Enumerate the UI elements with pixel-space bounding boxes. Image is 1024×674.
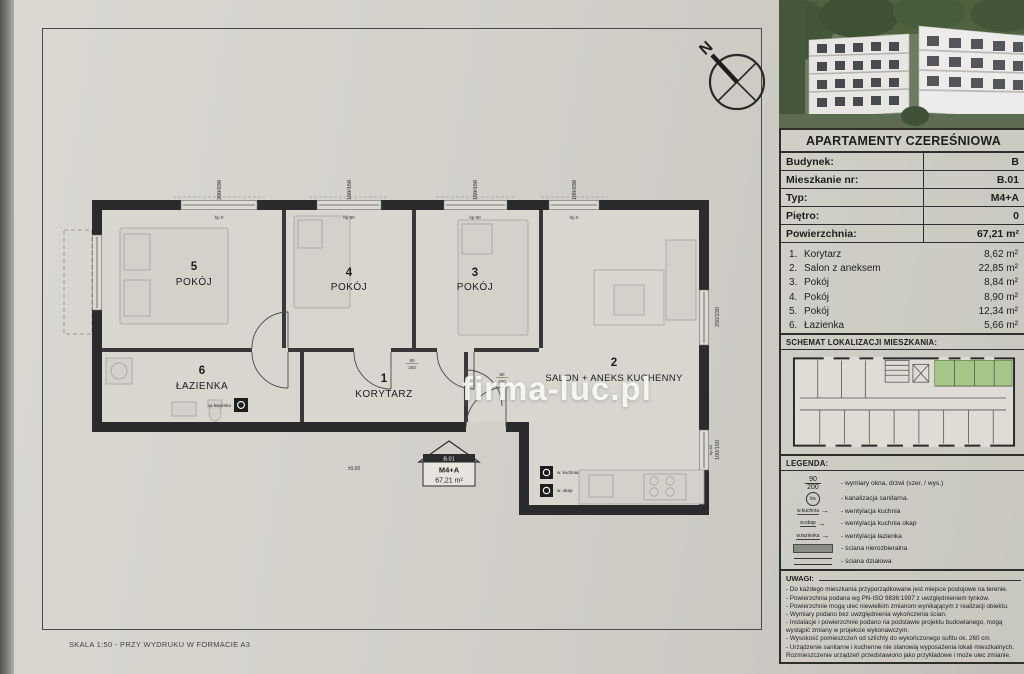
- room-list: 1. Korytarz 8,62 m² 2. Salon z aneksem 2…: [781, 243, 1024, 333]
- room-no: 3.: [789, 276, 804, 290]
- room-area: 8,84 m²: [984, 276, 1018, 290]
- titleblock-row: Mieszkanie nr: B.01: [781, 171, 1024, 189]
- window-hp: hp 80: [469, 215, 481, 220]
- row-value: 67,21 m²: [923, 225, 1024, 242]
- solid-wall-symbol: [793, 544, 833, 553]
- row-value: M4+A: [923, 189, 1024, 206]
- row-label: Piętro:: [781, 207, 923, 224]
- room-name: Pokój: [804, 276, 984, 290]
- badge-type: M4+A: [439, 466, 460, 475]
- room-name: Pokój: [804, 291, 984, 305]
- room-list-item: 5. Pokój 12,34 m²: [789, 305, 1018, 319]
- legend-item: w.kuchnia→ - wentylacja kuchnia: [785, 505, 1022, 518]
- vent-word: w.kuchnia: [797, 508, 819, 515]
- scale-note: SKALA 1:50 - PRZY WYDRUKU W FORMACIE A3: [69, 640, 250, 649]
- window-dim-symbol: 90 200: [805, 476, 821, 492]
- row-label: Typ:: [781, 189, 923, 206]
- window-dim-right: 100/150: [715, 440, 721, 460]
- legend-label: - wentylacja kuchnia okap: [841, 520, 917, 527]
- window-dim: 160/150: [473, 180, 479, 200]
- sanitary-symbol: ks: [806, 492, 820, 506]
- paper-sheet: N: [14, 0, 1024, 674]
- row-value: 0: [923, 207, 1024, 224]
- vent-hood-symbol: w.okap→: [800, 520, 826, 527]
- room4-name: POKÓJ: [331, 280, 367, 293]
- room-area: 12,34 m²: [979, 305, 1018, 319]
- highlighted-apartment: [934, 361, 1011, 387]
- room-list-item: 4. Pokój 8,90 m²: [789, 291, 1018, 305]
- window-dim: 100/230: [572, 180, 578, 200]
- vent-bath-symbol: w.łazienka→: [796, 533, 829, 540]
- room1-name: KORYTARZ: [355, 389, 413, 400]
- apartment-badge: B.01 M4+A 67,21 m²: [419, 441, 479, 486]
- level-mark: ±0,00: [348, 466, 361, 472]
- room-name: Pokój: [804, 305, 979, 319]
- room-name: Salon z aneksem: [804, 262, 979, 276]
- room-no: 2.: [789, 262, 804, 276]
- notes-heading-text: UWAGI:: [786, 574, 814, 583]
- room3-number: 3: [472, 267, 478, 279]
- partition-wall-symbol: [794, 558, 832, 565]
- vent-kitchen-label: w. kuchnia: [557, 470, 579, 475]
- row-label: Budynek:: [781, 153, 923, 170]
- location-heading: SCHEMAT LOKALIZACJI MIESZKANIA:: [781, 333, 1024, 350]
- room-no: 4.: [789, 291, 804, 305]
- room3-name: POKÓJ: [457, 280, 493, 293]
- north-arrow-icon: N: [697, 30, 767, 118]
- legend-item: w.okap→ - wentylacja kuchnia okap: [785, 517, 1022, 530]
- room1-number: 1: [381, 373, 388, 385]
- room-name: Korytarz: [804, 248, 984, 262]
- legend-label: - wymiary okna, drzwi (szer. / wys.): [841, 480, 943, 487]
- note-line: - Do każdego mieszkania przyporządkowane…: [786, 586, 1021, 594]
- dim-width: 90: [805, 476, 821, 485]
- vent-word: w.okap: [800, 520, 816, 527]
- note-line: - Urządzenie sanitarne i kuchenne nie st…: [786, 644, 1021, 660]
- note-line: - Wymiary podano bez uwzględnienia wykoń…: [786, 611, 1021, 619]
- legend-label: - kanalizacja sanitarna.: [841, 495, 908, 502]
- window-hp: hp 80: [343, 215, 355, 220]
- room-area: 5,66 m²: [984, 319, 1018, 333]
- row-value: B.01: [923, 171, 1024, 188]
- notes: - Do każdego mieszkania przyporządkowane…: [781, 584, 1024, 662]
- window-hp-right: hp 80: [708, 444, 713, 455]
- window-hp: hp 0: [570, 215, 579, 220]
- dim-height: 200: [807, 484, 819, 491]
- room5-number: 5: [191, 261, 198, 273]
- legend-item: w.łazienka→ - wentylacja łazienka: [785, 530, 1022, 543]
- row-label: Powierzchnia:: [781, 225, 923, 242]
- arrow-icon: →: [821, 508, 829, 514]
- terrace-outline: [64, 230, 92, 334]
- note-line: - Powierzchnie mogą ulec niewielkim zmia…: [786, 603, 1021, 611]
- legend-label: - ściana nierozbieralna: [841, 545, 907, 552]
- legend-item: ks - kanalizacja sanitarna.: [785, 492, 1022, 505]
- room-list-item: 1. Korytarz 8,62 m²: [789, 248, 1018, 262]
- room6-name: ŁAZIENKA: [176, 381, 228, 392]
- door-dim-width: 80: [409, 358, 415, 363]
- arrow-icon: →: [822, 533, 830, 539]
- row-label: Mieszkanie nr:: [781, 171, 923, 188]
- note-line: - Powierzchnia podana wg PN-ISO 9836:199…: [786, 595, 1021, 603]
- room-area: 22,85 m²: [979, 262, 1018, 276]
- room-area: 8,62 m²: [984, 248, 1018, 262]
- building-photo: [779, 0, 1024, 128]
- titleblock-row: Powierzchnia: 67,21 m²: [781, 225, 1024, 243]
- window-dim: 160/150: [347, 180, 353, 200]
- floor-plan: w. łazienka w. kuchnia w. okap 5 POKÓJ 4…: [54, 170, 724, 530]
- legend-item: - ściana nierozbieralna: [785, 542, 1022, 555]
- info-panel: APARTAMENTY CZEREŚNIOWA Budynek: B Miesz…: [779, 128, 1024, 664]
- note-line: - Instalacje i powierzchnie podano na po…: [786, 619, 1021, 635]
- notes-heading: UWAGI:: [781, 569, 1024, 584]
- note-line: - Wysokość pomieszczeń od szlichty do wy…: [786, 635, 1021, 643]
- door-dim-height: 200: [408, 365, 416, 370]
- heading-rule: [819, 580, 1021, 581]
- legend-heading: LEGENDA:: [781, 454, 1024, 471]
- room-no: 6.: [789, 319, 804, 333]
- room-name: Łazienka: [804, 319, 984, 333]
- room-list-item: 3. Pokój 8,84 m²: [789, 276, 1018, 290]
- titleblock-row: Budynek: B: [781, 153, 1024, 171]
- room-list-item: 2. Salon z aneksem 22,85 m²: [789, 262, 1018, 276]
- room-area: 8,90 m²: [984, 291, 1018, 305]
- legend-item: - ściana działowa: [785, 555, 1022, 568]
- titleblock-row: Typ: M4+A: [781, 189, 1024, 207]
- vent-word: w.łazienka: [796, 533, 819, 540]
- window-dim: 200/230: [217, 180, 223, 200]
- window-dim-right: 250/230: [715, 307, 721, 327]
- vent-kitchen-symbol: w.kuchnia→: [797, 508, 829, 515]
- window-hp: hp 0: [215, 215, 224, 220]
- vent-bath-label: w. łazienka: [209, 403, 232, 408]
- legend: 90 200 - wymiary okna, drzwi (szer. / wy…: [781, 471, 1024, 569]
- badge-area: 67,21 m²: [435, 478, 463, 485]
- room6-number: 6: [199, 365, 205, 377]
- arrow-icon: →: [818, 521, 826, 527]
- legend-label: - wentylacja kuchnia: [841, 508, 900, 515]
- location-schematic: [781, 350, 1024, 454]
- legend-label: - ściana działowa: [841, 558, 892, 565]
- room4-number: 4: [346, 267, 353, 279]
- watermark: firma-luc.pl: [462, 370, 652, 408]
- legend-item: 90 200 - wymiary okna, drzwi (szer. / wy…: [785, 475, 1022, 492]
- room-no: 5.: [789, 305, 804, 319]
- legend-label: - wentylacja łazienka: [841, 533, 902, 540]
- room5-name: POKÓJ: [176, 275, 212, 288]
- row-value: B: [923, 153, 1024, 170]
- room-no: 1.: [789, 248, 804, 262]
- vent-hood-label: w. okap: [557, 488, 573, 493]
- room2-number: 2: [611, 357, 617, 369]
- titleblock-row: Piętro: 0: [781, 207, 1024, 225]
- project-title: APARTAMENTY CZEREŚNIOWA: [781, 130, 1024, 153]
- room-list-item: 6. Łazienka 5,66 m²: [789, 319, 1018, 333]
